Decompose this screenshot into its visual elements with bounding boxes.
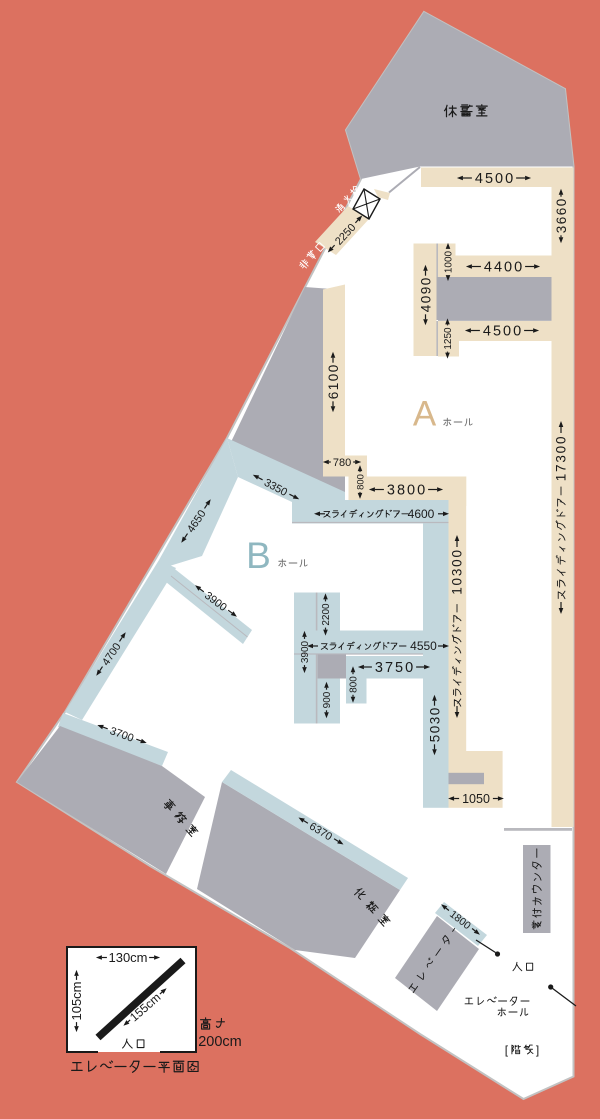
- svg-text:130cm: 130cm: [108, 950, 147, 965]
- svg-text:900: 900: [322, 691, 333, 708]
- svg-text:4600: 4600: [408, 507, 435, 521]
- svg-text:A: A: [413, 395, 437, 434]
- svg-text:4400: 4400: [484, 260, 524, 276]
- svg-text:3660: 3660: [554, 197, 569, 233]
- svg-text:6100: 6100: [326, 363, 341, 399]
- svg-text:1250: 1250: [443, 327, 454, 350]
- svg-text:4500: 4500: [483, 324, 523, 340]
- svg-text:5030: 5030: [427, 706, 442, 742]
- svg-text:800: 800: [355, 474, 366, 490]
- svg-text:4550: 4550: [410, 639, 437, 653]
- svg-text:B: B: [246, 535, 271, 576]
- svg-text:4090: 4090: [418, 276, 433, 312]
- svg-text:105cm: 105cm: [69, 981, 84, 1020]
- svg-text:3900: 3900: [300, 640, 311, 663]
- svg-text:200cm: 200cm: [198, 1034, 242, 1050]
- svg-text:3800: 3800: [387, 483, 427, 499]
- svg-text:]: ]: [536, 1043, 539, 1057]
- svg-text:780: 780: [333, 457, 351, 469]
- svg-text:1000: 1000: [444, 250, 455, 273]
- svg-text:1050: 1050: [462, 792, 490, 806]
- svg-text:10300: 10300: [450, 548, 465, 595]
- svg-text:800: 800: [349, 676, 360, 693]
- svg-text:4500: 4500: [475, 171, 515, 187]
- svg-text:3750: 3750: [375, 660, 415, 676]
- svg-text:17300: 17300: [554, 435, 569, 482]
- svg-text:2200: 2200: [321, 603, 332, 626]
